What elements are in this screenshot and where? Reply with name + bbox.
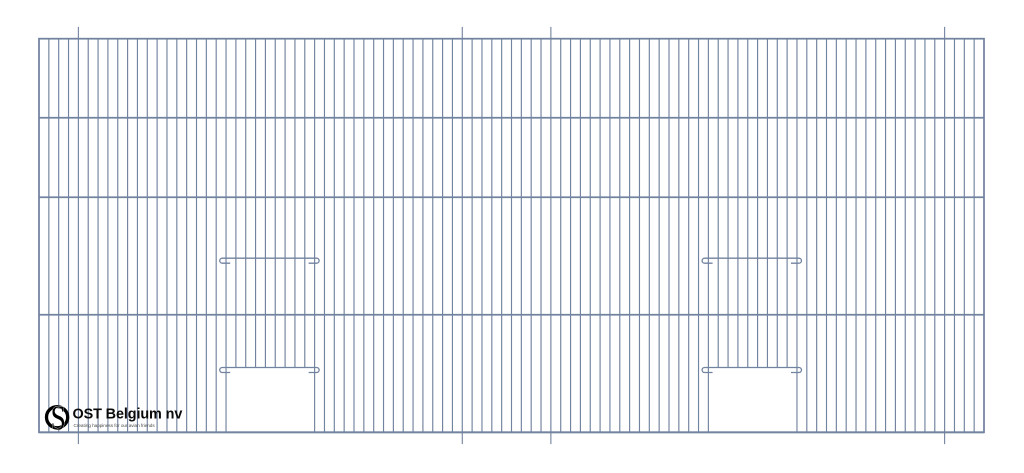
- svg-text:S: S: [51, 398, 66, 437]
- svg-text:OST Belgium nv: OST Belgium nv: [73, 407, 183, 423]
- svg-text:Creating happiness for our avi: Creating happiness for our avian friends: [74, 423, 156, 428]
